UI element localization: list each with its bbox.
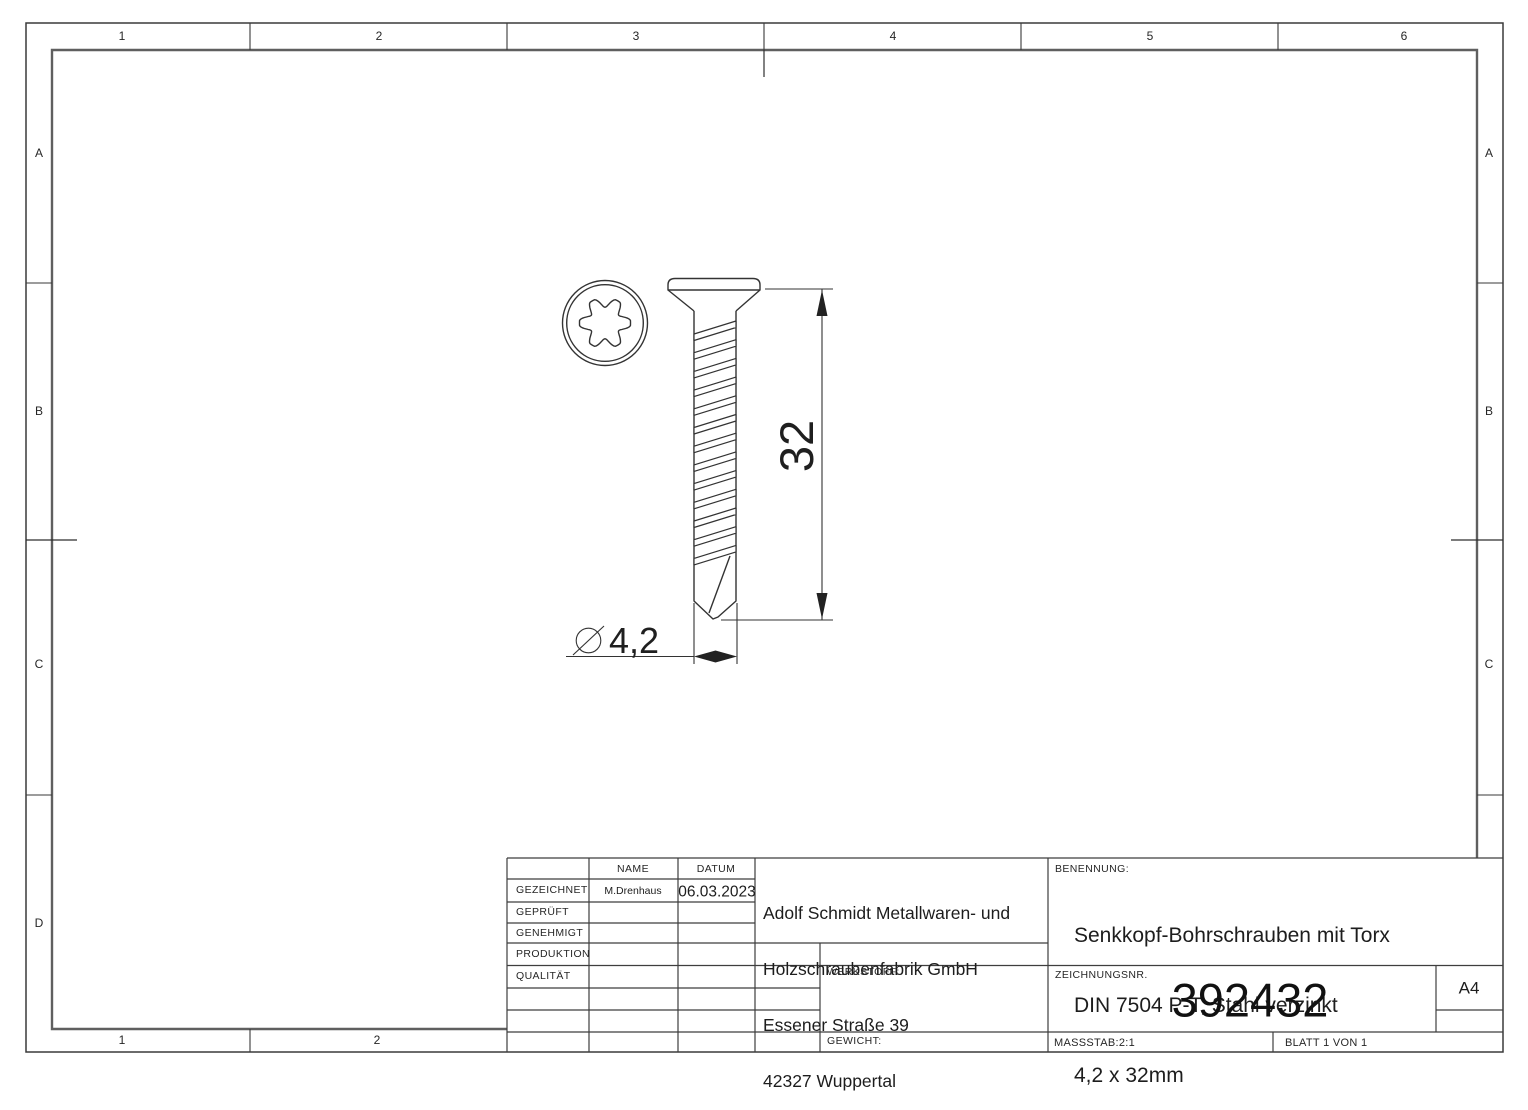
company-address: Adolf Schmidt Metallwaren- und Holzschra…	[763, 867, 1010, 1109]
grid-row-label: A	[35, 147, 43, 159]
head-outer-circle	[563, 281, 648, 366]
row-label-geprueft: GEPRÜFT	[516, 907, 569, 918]
grid-col-label-bottom: 2	[374, 1034, 381, 1046]
head-chamfer-circle	[567, 285, 644, 362]
scale-text: MASSSTAB:2:1	[1054, 1038, 1135, 1049]
company-line: Essener Straße 39	[763, 1016, 1010, 1035]
screw-side-view	[668, 279, 760, 620]
arrow-up	[817, 290, 828, 316]
arrow-bowtie	[694, 651, 737, 663]
company-line: 42327 Wuppertal	[763, 1072, 1010, 1091]
grid-col-label: 5	[1147, 30, 1154, 42]
company-line: Adolf Schmidt Metallwaren- und	[763, 904, 1010, 923]
col-header-date: DATUM	[697, 864, 736, 875]
drawn-date: 06.03.2023	[678, 884, 756, 900]
drawing-number: 392432	[1172, 977, 1329, 1024]
diameter-symbol-slash	[573, 626, 604, 655]
grid-row-label: B	[1485, 405, 1493, 417]
col-header-name: NAME	[617, 864, 649, 875]
benennung-label: BENENNUNG:	[1055, 864, 1129, 875]
grid-col-label: 4	[890, 30, 897, 42]
row-label-gezeichnet: GEZEICHNET	[516, 885, 588, 896]
paper-format: A4	[1459, 980, 1480, 997]
row-label-genehmigt: GENEHMIGT	[516, 928, 583, 939]
grid-row-label: B	[35, 405, 43, 417]
head-taper-left	[668, 290, 694, 311]
grid-row-label: A	[1485, 147, 1493, 159]
gewicht-label: GEWICHT:	[827, 1036, 882, 1047]
length-dim-text: 32	[770, 420, 823, 472]
grid-col-label: 6	[1401, 30, 1408, 42]
zeichnungsnr-label: ZEICHNUNGSNR.	[1055, 970, 1148, 981]
designation-line: Senkkopf-Bohrschrauben mit Torx	[1074, 924, 1390, 947]
row-label-qualitaet: QUALITÄT	[516, 971, 571, 982]
diameter-dim-text: 4,2	[609, 620, 659, 661]
head-cap	[668, 279, 760, 291]
row-label-produktion: PRODUKTION	[516, 949, 590, 960]
grid-col-label: 3	[633, 30, 640, 42]
drawing-sheet: { "border": { "top_labels": ["1","2","3"…	[0, 0, 1528, 1080]
arrow-down	[817, 593, 828, 619]
grid-row-label: C	[35, 658, 44, 670]
drill-flute	[709, 556, 730, 613]
drawn-by-name: M.Drenhaus	[604, 886, 661, 897]
grid-row-label: C	[1485, 658, 1494, 670]
centering-marks	[26, 50, 1503, 540]
grid-col-label-bottom: 1	[119, 1034, 126, 1046]
grid-col-label: 1	[119, 30, 126, 42]
sheet-count-text: BLATT 1 VON 1	[1285, 1038, 1367, 1049]
screw-threads	[694, 321, 736, 565]
grid-col-label: 2	[376, 30, 383, 42]
head-taper-right	[736, 290, 760, 311]
screw-top-view	[563, 281, 648, 366]
werkstoff-label: WERKSTOFF:	[827, 967, 900, 978]
designation-line: 4,2 x 32mm	[1074, 1064, 1390, 1087]
grid-row-label: D	[35, 917, 44, 929]
torx-recess	[580, 300, 631, 347]
